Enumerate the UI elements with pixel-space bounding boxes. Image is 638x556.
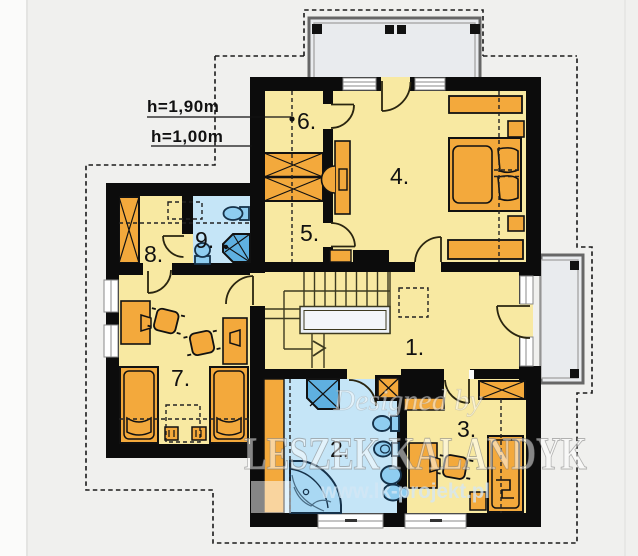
svg-text:www.lk-projekt.pl: www.lk-projekt.pl xyxy=(320,480,490,503)
svg-text:Designed by: Designed by xyxy=(332,384,483,417)
svg-text:h=1,00m: h=1,00m xyxy=(151,127,223,146)
svg-text:8.: 8. xyxy=(144,241,163,267)
svg-text:6.: 6. xyxy=(297,108,316,134)
svg-text:5.: 5. xyxy=(300,220,319,246)
svg-text:h=1,90m: h=1,90m xyxy=(147,97,219,116)
svg-text:7.: 7. xyxy=(171,365,190,391)
svg-text:4.: 4. xyxy=(390,163,409,189)
svg-text:1.: 1. xyxy=(405,334,424,360)
svg-text:9.: 9. xyxy=(195,227,214,253)
svg-text:LESZEK KALANDYK: LESZEK KALANDYK xyxy=(244,428,587,480)
